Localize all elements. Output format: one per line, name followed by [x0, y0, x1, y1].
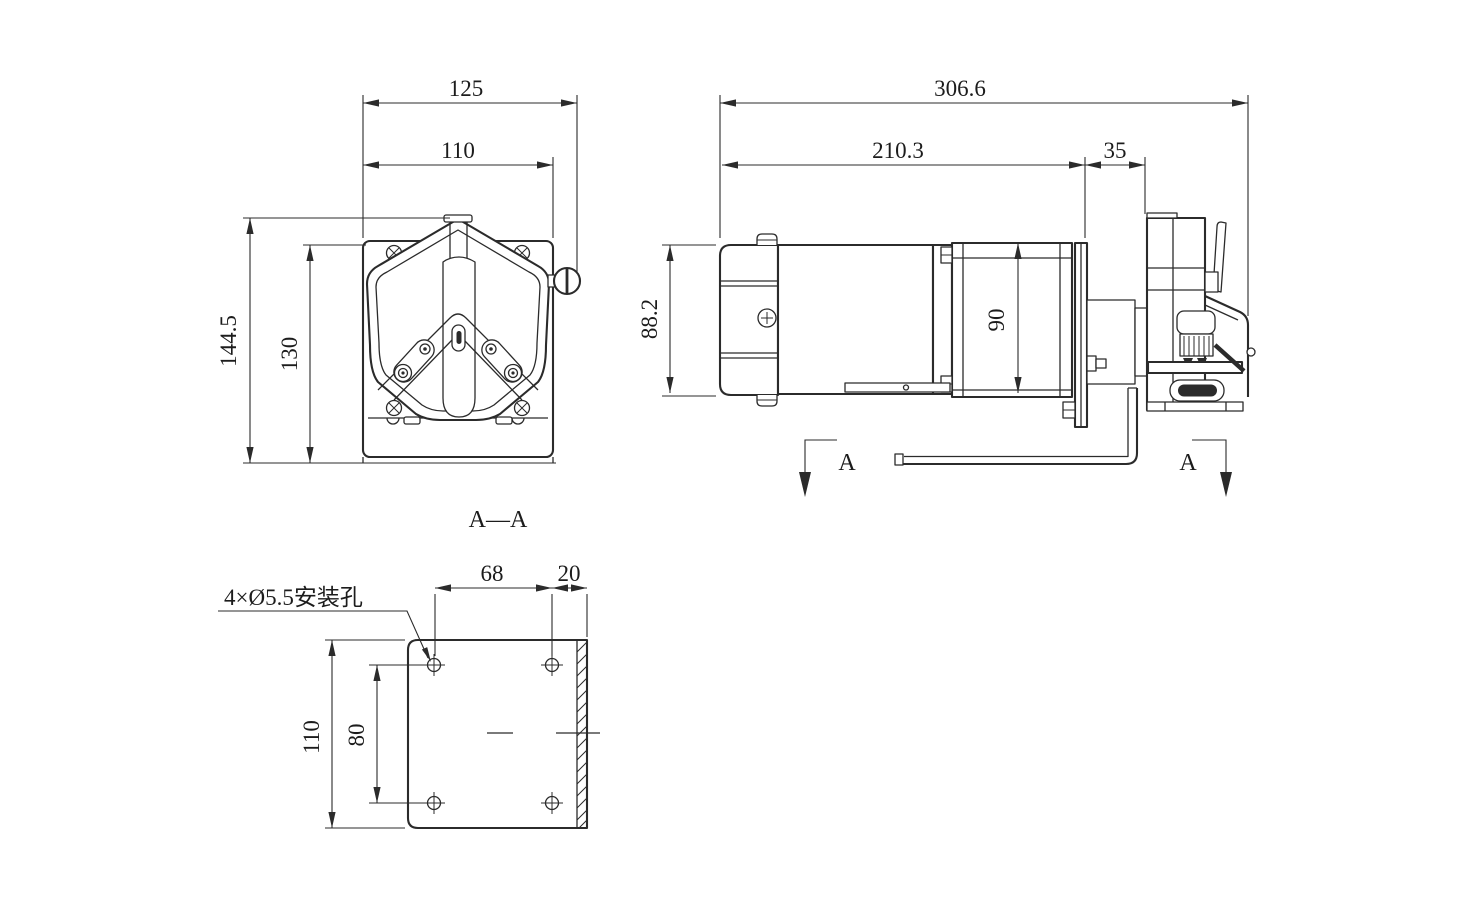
section-a-a-label: A—A	[469, 507, 528, 533]
pump-head-side	[1147, 213, 1255, 411]
section-arrow-a-left: A	[838, 450, 856, 476]
dim-144-5-label: 144.5	[216, 315, 241, 367]
dim-125-label: 125	[449, 76, 484, 101]
dim-210-3-label: 210.3	[872, 138, 924, 163]
side-view: 306.6 210.3 35 88.2 90 A A	[637, 76, 1255, 497]
front-view: 125 110 144.5 130 A—A	[216, 76, 580, 533]
dim-110-bottom-label: 110	[299, 720, 324, 754]
tube-clamp-comb	[1180, 334, 1213, 356]
motor-rear-cap	[720, 234, 778, 406]
dim-35-label: 35	[1104, 138, 1127, 163]
section-cut-marks: A A	[799, 440, 1232, 497]
dim-20-label: 20	[558, 561, 581, 586]
mounting-holes-note: 4×Ø5.5安装孔	[218, 585, 431, 662]
bottom-view: 68 20 110 80 4×Ø5.5安装孔	[218, 561, 600, 828]
tube-cartridge	[1177, 311, 1215, 334]
dim-110-label: 110	[441, 138, 475, 163]
section-arrow-a-right: A	[1179, 450, 1197, 476]
mounting-holes-note-text: 4×Ø5.5安装孔	[224, 585, 363, 610]
dim-68-label: 68	[481, 561, 504, 586]
dim-90-label: 90	[984, 309, 1009, 332]
engineering-drawing-canvas: 125 110 144.5 130 A—A	[0, 0, 1484, 899]
pump-head-neck	[1087, 300, 1147, 384]
pump-dimensional-drawing: 125 110 144.5 130 A—A	[0, 0, 1484, 899]
dim-130-label: 130	[277, 337, 302, 372]
dim-306-6-label: 306.6	[934, 76, 986, 101]
dim-88-2-label: 88.2	[637, 299, 662, 339]
dim-80-label: 80	[344, 724, 369, 747]
motor-body	[778, 245, 952, 394]
